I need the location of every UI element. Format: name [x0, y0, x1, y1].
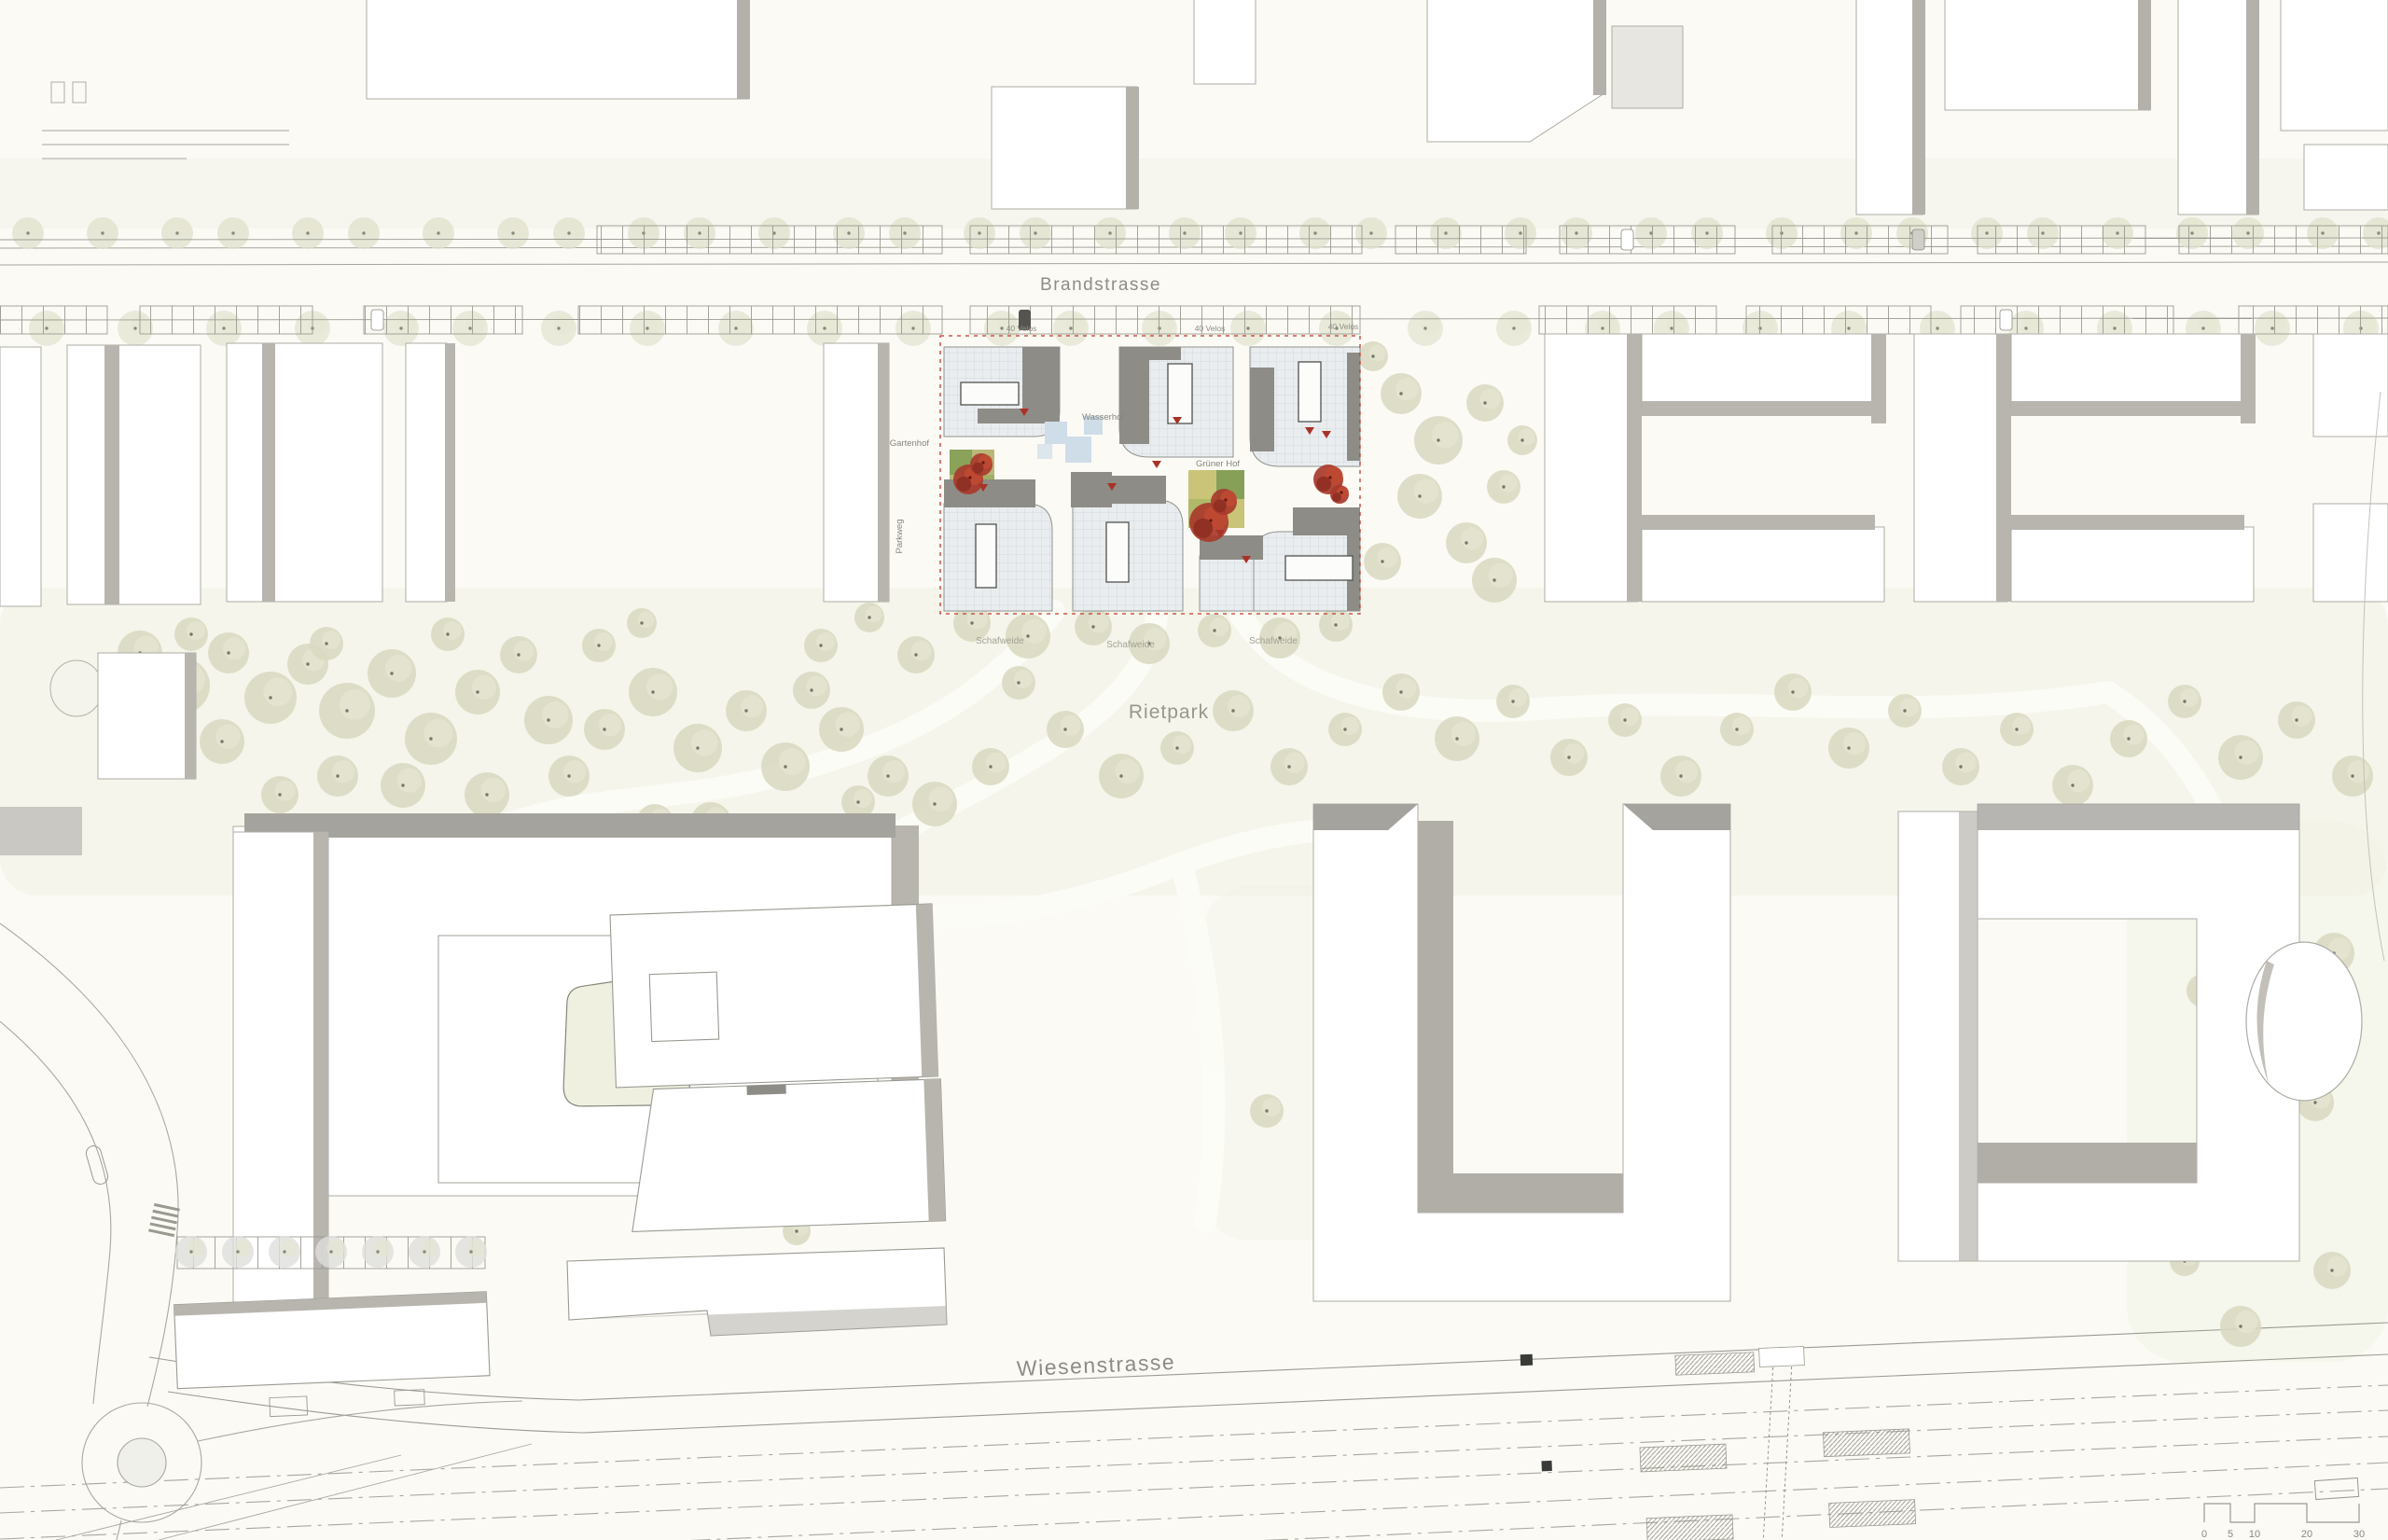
- project-cluster: [940, 336, 1360, 614]
- tree-icon: [627, 608, 657, 638]
- pavilion: [1071, 472, 1112, 507]
- tree-icon: [292, 217, 324, 249]
- tree-icon: [269, 1236, 300, 1268]
- tree-icon: [1435, 716, 1479, 761]
- tree-icon: [1608, 703, 1642, 737]
- tree-icon: [174, 617, 208, 651]
- tree-icon: [465, 772, 509, 817]
- tree-icon: [423, 217, 454, 249]
- tree-icon: [1487, 470, 1520, 504]
- tree-icon: [524, 696, 573, 744]
- tree-icon: [541, 311, 576, 346]
- courtyard-label-wasserhof: Wasserhof: [1082, 412, 1124, 423]
- tree-icon: [244, 672, 297, 724]
- scale-tick-0: 0: [2201, 1529, 2207, 1540]
- tree-icon: [1507, 425, 1537, 455]
- tree-icon: [629, 668, 677, 716]
- round-building: [2246, 942, 2362, 1101]
- entrance-marker-icon: [1152, 461, 1161, 468]
- tree-icon: [868, 756, 909, 797]
- path-label-parkweg: Parkweg: [895, 520, 905, 554]
- wiesenstrasse-bar-building: [567, 1248, 947, 1336]
- tree-icon: [1550, 739, 1588, 776]
- tree-icon: [1496, 685, 1530, 718]
- scale-tick-30: 30: [2353, 1529, 2365, 1540]
- tree-icon: [222, 1236, 254, 1268]
- c-building-1: [1545, 334, 1886, 602]
- tree-icon: [548, 756, 590, 797]
- tree-icon: [87, 217, 118, 249]
- c-building-2: [1914, 334, 2256, 602]
- meadow-label-2: Schafweide: [1106, 640, 1155, 650]
- tree-icon: [912, 782, 957, 826]
- tree-icon: [1364, 543, 1401, 580]
- tree-icon: [673, 724, 722, 772]
- tree-icon: [1047, 711, 1084, 748]
- tree-icon: [819, 707, 864, 752]
- tree-icon: [854, 603, 884, 632]
- tree-icon: [1828, 728, 1869, 769]
- tree-icon: [319, 683, 375, 739]
- meadow-label-1: Schafweide: [976, 636, 1024, 646]
- tree-icon: [381, 763, 425, 808]
- scale-tick-10: 10: [2249, 1529, 2260, 1540]
- tree-icon: [12, 217, 44, 249]
- tree-icon: [1270, 748, 1308, 785]
- tree-icon: [804, 629, 838, 662]
- tree-icon: [261, 776, 298, 813]
- tree-icon: [348, 217, 380, 249]
- tree-icon: [1472, 558, 1517, 603]
- tree-icon: [1942, 748, 1979, 785]
- courtyard-label-gartenhof: Gartenhof: [890, 438, 930, 449]
- tree-icon: [1720, 713, 1754, 746]
- bike-parking-label-1: 40 Velos: [1007, 324, 1037, 333]
- tree-icon: [317, 756, 358, 797]
- tree-icon: [2278, 701, 2315, 739]
- courtyard-label-gruener-hof: Grüner Hof: [1196, 459, 1240, 469]
- tree-icon: [2220, 1306, 2261, 1347]
- southeast-c-building: [1898, 804, 2299, 1261]
- tree-icon: [1328, 713, 1362, 746]
- tree-icon: [1358, 341, 1388, 371]
- tree-icon: [455, 670, 500, 715]
- tree-icon: [2052, 765, 2093, 806]
- tree-icon: [175, 1236, 207, 1268]
- scale-bar: 0 5 10 20 30: [2201, 1478, 2365, 1540]
- tree-icon: [972, 748, 1009, 785]
- tree-icon: [1888, 694, 1922, 728]
- mid-south-buildings: [610, 904, 946, 1232]
- tree-icon: [315, 1236, 347, 1268]
- tree-icon: [2168, 685, 2201, 718]
- tree-icon: [2110, 720, 2147, 757]
- crosswalk: [148, 1204, 179, 1235]
- tree-icon: [2218, 735, 2263, 780]
- tree-icon: [1382, 673, 1420, 711]
- tree-icon: [1099, 754, 1144, 798]
- red-tree-icon: [970, 453, 993, 476]
- park-label-rietpark: Rietpark: [1129, 701, 1209, 723]
- water-features: [1037, 416, 1103, 463]
- red-tree-icon: [1330, 485, 1349, 504]
- meadow-label-3: Schafweide: [1249, 636, 1298, 646]
- east-c-buildings: [1545, 334, 2388, 602]
- tree-icon: [409, 1236, 440, 1268]
- tree-icon: [1160, 731, 1194, 765]
- tree-icon: [161, 217, 193, 249]
- tree-icon: [362, 1236, 394, 1268]
- tree-icon: [431, 617, 465, 651]
- tree-icon: [761, 742, 810, 791]
- rail-crossing: [1520, 1339, 1916, 1540]
- southwest-buildings: [174, 1292, 492, 1421]
- tree-icon: [726, 690, 767, 731]
- west-slab-buildings: [0, 343, 889, 606]
- tree-icon: [584, 709, 625, 750]
- tree-icon: [1198, 614, 1231, 647]
- tree-icon: [1002, 666, 1035, 700]
- tree-icon: [793, 672, 830, 709]
- tree-icon: [553, 217, 585, 249]
- bike-parking-label-2: 40 Velos: [1195, 324, 1226, 333]
- tree-icon: [217, 217, 249, 249]
- tree-icon: [1213, 690, 1254, 731]
- tree-icon: [582, 629, 616, 662]
- tree-icon: [497, 217, 529, 249]
- tree-icon: [1774, 673, 1812, 711]
- tree-icon: [1466, 384, 1504, 422]
- tree-icon: [1381, 373, 1422, 414]
- tree-icon: [1660, 756, 1701, 797]
- tree-icon: [1414, 416, 1463, 465]
- tree-icon: [1397, 474, 1442, 519]
- tree-icon: [1446, 522, 1487, 563]
- site-plan: 0 5 10 20 30 Brandstrasse Rietpark Wiese…: [0, 0, 2388, 1540]
- tree-icon: [200, 719, 244, 764]
- tree-icon: [310, 627, 343, 660]
- building-4: [944, 504, 1052, 611]
- tree-icon: [1250, 1094, 1284, 1128]
- site-plan-drawing: 0 5 10 20 30 Brandstrasse Rietpark Wiese…: [0, 0, 2388, 1540]
- tree-icon: [897, 636, 935, 673]
- red-tree-icon: [1211, 489, 1237, 515]
- tree-icon: [2313, 1252, 2351, 1289]
- tree-icon: [455, 1236, 487, 1268]
- scale-tick-20: 20: [2301, 1529, 2312, 1540]
- street-label-brandstrasse: Brandstrasse: [1040, 275, 1161, 295]
- tree-icon: [1408, 311, 1443, 346]
- tree-icon: [208, 632, 249, 673]
- tree-icon: [405, 713, 457, 765]
- tree-icon: [1496, 311, 1532, 346]
- tree-icon: [368, 649, 416, 698]
- tree-icon: [2000, 713, 2034, 746]
- bike-parking-label-3: 40 Velos: [1328, 322, 1359, 331]
- tree-icon: [500, 636, 537, 673]
- tree-icon: [2332, 756, 2373, 797]
- parking-row-north: [597, 226, 2388, 254]
- scale-tick-5: 5: [2228, 1529, 2233, 1540]
